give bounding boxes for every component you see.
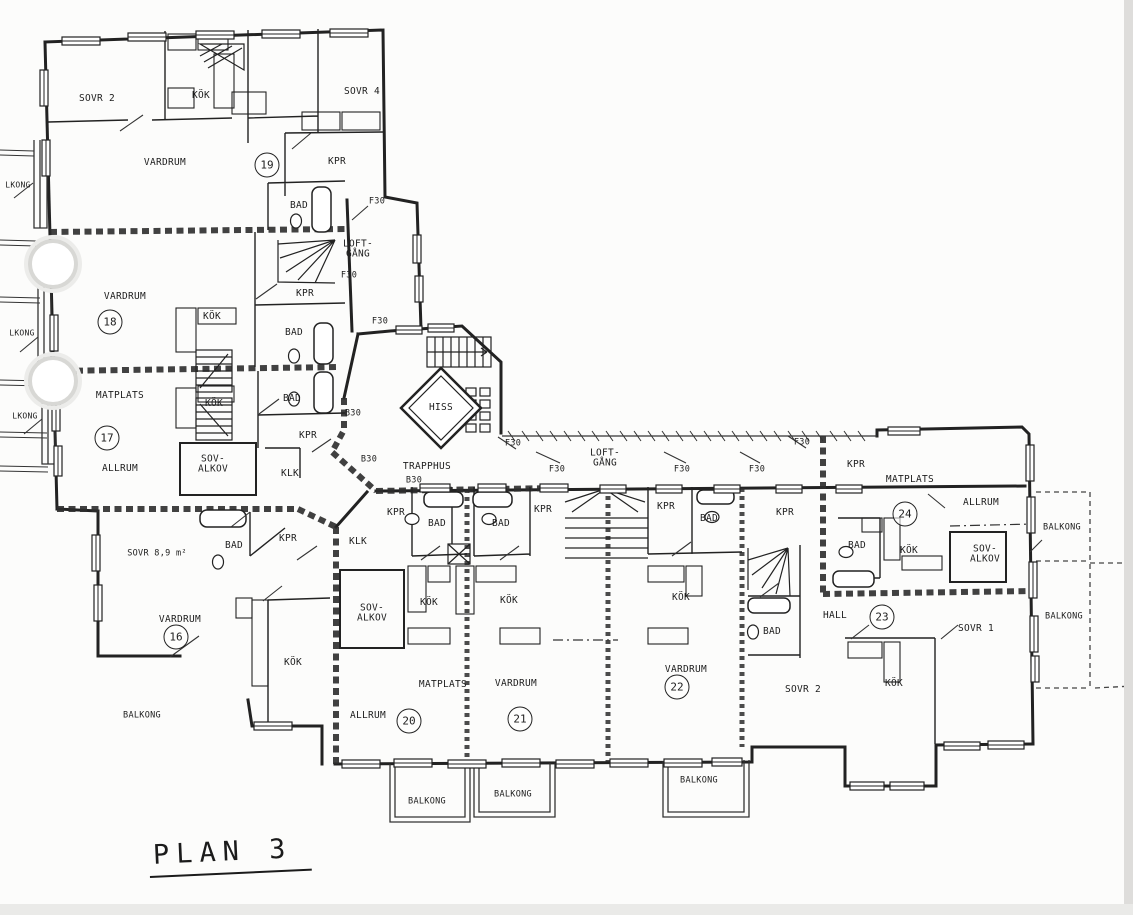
apartment-number: 17 <box>95 426 120 451</box>
apartment-number: 19 <box>255 153 280 178</box>
room-label: KLK <box>281 469 299 479</box>
room-label: KÖK <box>205 399 223 409</box>
room-label: KÖK <box>885 679 903 689</box>
paper-background <box>0 0 1133 915</box>
room-label: KLK <box>349 537 367 547</box>
apartment-number: 22 <box>665 675 690 700</box>
room-label: BALKONG <box>680 776 718 785</box>
room-label: B30 <box>345 409 361 418</box>
room-label: SOVR 1 <box>958 624 994 634</box>
room-label: B30 <box>361 455 377 464</box>
scan-edge-right <box>1124 0 1133 915</box>
room-label: F30 <box>341 271 357 280</box>
room-label: TRAPPHUS <box>403 462 451 472</box>
room-label: SOV- ALKOV <box>357 604 387 625</box>
room-label: BALKONG <box>123 711 161 720</box>
apartment-number: 23 <box>870 605 895 630</box>
room-label: HISS <box>429 403 453 413</box>
apartment-number: 20 <box>397 709 422 734</box>
room-label: KPR <box>657 502 675 512</box>
room-label: BALKONG <box>408 797 446 806</box>
apartment-number: 24 <box>893 502 918 527</box>
room-label: ALLRUM <box>350 711 386 721</box>
room-label: VARDRUM <box>144 158 186 168</box>
room-label: BAD <box>428 519 446 529</box>
room-label: BALKONG <box>1045 612 1083 621</box>
room-label: MATPLATS <box>96 391 144 401</box>
room-label: BAD <box>492 519 510 529</box>
room-label: KPR <box>776 508 794 518</box>
room-label: MATPLATS <box>886 475 934 485</box>
room-label: BAD <box>225 541 243 551</box>
floor-plan-drawing <box>0 0 1133 915</box>
room-label: KPR <box>299 431 317 441</box>
room-label: ALLRUM <box>963 498 999 508</box>
room-label: KÖK <box>203 312 221 322</box>
room-label: B30 <box>406 476 422 485</box>
apartment-number: 18 <box>98 310 123 335</box>
room-label: KÖK <box>900 546 918 556</box>
room-label: BAD <box>290 201 308 211</box>
plan-title: PLAN 3 <box>148 833 311 878</box>
room-label: LKONG <box>5 182 31 191</box>
apartment-number: 21 <box>508 707 533 732</box>
room-label: SOVR 4 <box>344 87 380 97</box>
floor-plan-page: SOVR 2KÖKSOVR 4VARDRUMKPRBADF30LOFT- GÅN… <box>0 0 1133 915</box>
room-label: F30 <box>505 439 521 448</box>
room-label: F30 <box>369 197 385 206</box>
room-label: HALL <box>823 611 847 621</box>
room-label: BAD <box>763 627 781 637</box>
room-label: F30 <box>549 465 565 474</box>
room-label: ALLRUM <box>102 464 138 474</box>
room-label: KPR <box>328 157 346 167</box>
apartment-number: 16 <box>164 625 189 650</box>
room-label: KÖK <box>284 658 302 668</box>
room-label: LKONG <box>9 330 35 339</box>
room-label: SOV- ALKOV <box>198 455 228 476</box>
room-label: F30 <box>749 465 765 474</box>
room-label: SOVR 2 <box>785 685 821 695</box>
room-label: LKONG <box>12 413 38 422</box>
room-label: BALKONG <box>494 790 532 799</box>
room-label: F30 <box>372 317 388 326</box>
room-label: KÖK <box>500 596 518 606</box>
room-label: F30 <box>794 438 810 447</box>
room-label: KÖK <box>420 598 438 608</box>
room-label: BAD <box>283 394 301 404</box>
room-label: KÖK <box>192 91 210 101</box>
room-label: F30 <box>674 465 690 474</box>
scan-edge-bottom <box>0 904 1133 915</box>
room-label: SOVR 8,9 m² <box>127 549 187 558</box>
room-label: VARDRUM <box>104 292 146 302</box>
room-label: KÖK <box>672 593 690 603</box>
room-label: VARDRUM <box>665 665 707 675</box>
room-label: MATPLATS <box>419 680 467 690</box>
room-label: KPR <box>296 289 314 299</box>
room-label: BALKONG <box>1043 523 1081 532</box>
room-label: SOVR 2 <box>79 94 115 104</box>
room-label: BAD <box>700 514 718 524</box>
room-label: KPR <box>387 508 405 518</box>
room-label: BAD <box>848 541 866 551</box>
room-label: VARDRUM <box>495 679 537 689</box>
room-label: KPR <box>279 534 297 544</box>
room-label: KPR <box>847 460 865 470</box>
room-label: LOFT- GÅNG <box>590 449 620 470</box>
room-label: SOV- ALKOV <box>970 545 1000 566</box>
room-label: LOFT- GÅNG <box>343 240 373 261</box>
room-label: BAD <box>285 328 303 338</box>
room-label: VARDRUM <box>159 615 201 625</box>
room-label: KPR <box>534 505 552 515</box>
